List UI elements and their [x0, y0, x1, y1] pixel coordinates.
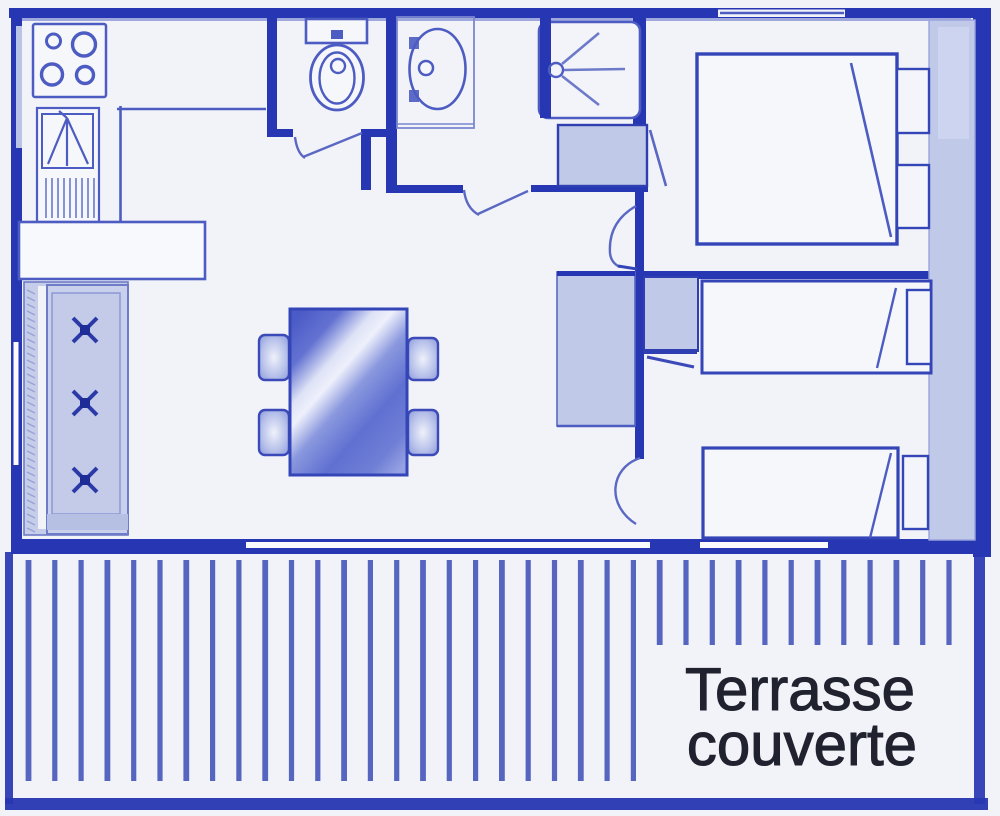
svg-text:couverte: couverte: [687, 711, 917, 778]
